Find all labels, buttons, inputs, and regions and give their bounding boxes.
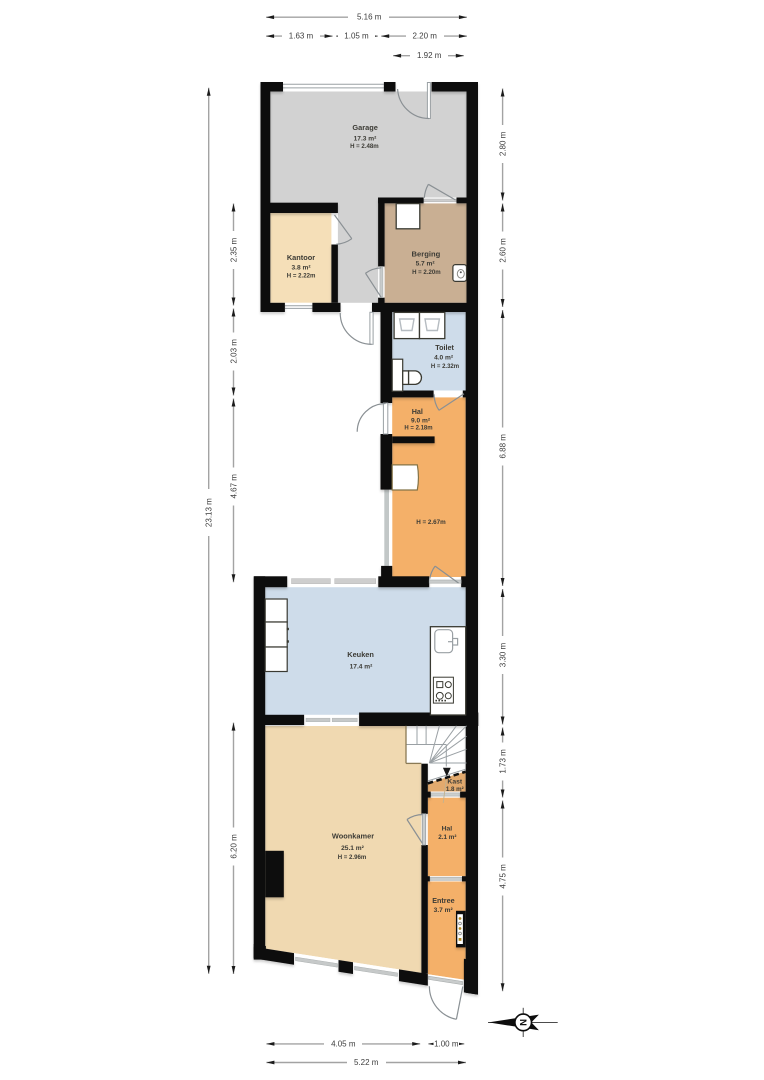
svg-text:Entree: Entree bbox=[432, 896, 454, 905]
svg-text:Berging: Berging bbox=[412, 249, 441, 258]
svg-text:Kast: Kast bbox=[447, 778, 462, 785]
svg-text:2.20 m: 2.20 m bbox=[412, 32, 437, 41]
svg-text:3.30 m: 3.30 m bbox=[499, 642, 508, 667]
svg-text:6.20 m: 6.20 m bbox=[230, 834, 239, 859]
svg-text:9.0 m²: 9.0 m² bbox=[411, 417, 431, 424]
svg-text:1.00 m: 1.00 m bbox=[434, 1039, 459, 1048]
svg-text:H = 2.48m: H = 2.48m bbox=[350, 143, 379, 150]
svg-text:Keuken: Keuken bbox=[347, 650, 374, 659]
svg-text:H = 2.67m: H = 2.67m bbox=[416, 519, 446, 526]
svg-text:5.22 m: 5.22 m bbox=[354, 1058, 379, 1067]
svg-text:5.7 m²: 5.7 m² bbox=[416, 260, 436, 267]
svg-text:H = 2.96m: H = 2.96m bbox=[338, 854, 367, 861]
svg-text:H = 2.22m: H = 2.22m bbox=[287, 272, 316, 279]
svg-text:5.16 m: 5.16 m bbox=[357, 13, 382, 22]
svg-text:4.0 m²: 4.0 m² bbox=[434, 355, 454, 362]
svg-text:2.80 m: 2.80 m bbox=[499, 131, 508, 156]
svg-text:17.4 m²: 17.4 m² bbox=[350, 664, 374, 671]
svg-text:2.35 m: 2.35 m bbox=[230, 237, 239, 262]
svg-text:Hal: Hal bbox=[442, 826, 453, 833]
svg-text:Kantoor: Kantoor bbox=[287, 253, 315, 262]
svg-text:Woonkamer: Woonkamer bbox=[332, 832, 374, 841]
svg-text:2.03 m: 2.03 m bbox=[230, 339, 239, 364]
svg-text:2.1 m²: 2.1 m² bbox=[438, 834, 456, 841]
svg-text:4.67 m: 4.67 m bbox=[230, 474, 239, 499]
svg-text:4.05 m: 4.05 m bbox=[331, 1039, 356, 1048]
svg-text:4.75 m: 4.75 m bbox=[499, 864, 508, 889]
svg-text:H = 2.32m: H = 2.32m bbox=[431, 364, 459, 370]
svg-text:N: N bbox=[518, 1019, 529, 1026]
svg-text:H = 2.20m: H = 2.20m bbox=[412, 269, 441, 276]
svg-text:Hal: Hal bbox=[412, 407, 423, 416]
svg-text:25.1 m²: 25.1 m² bbox=[341, 845, 365, 852]
svg-text:1.8 m²: 1.8 m² bbox=[446, 786, 464, 793]
svg-text:17.3 m²: 17.3 m² bbox=[354, 135, 378, 142]
svg-text:Garage: Garage bbox=[352, 123, 377, 132]
svg-text:23.13 m: 23.13 m bbox=[205, 498, 214, 527]
svg-text:1.63 m: 1.63 m bbox=[289, 32, 314, 41]
svg-text:1.92 m: 1.92 m bbox=[417, 51, 442, 60]
svg-text:2.60 m: 2.60 m bbox=[499, 238, 508, 263]
svg-text:Toilet: Toilet bbox=[435, 343, 454, 352]
svg-text:1.73 m: 1.73 m bbox=[499, 749, 508, 774]
svg-text:3.7 m²: 3.7 m² bbox=[434, 907, 454, 914]
svg-text:3.8 m²: 3.8 m² bbox=[291, 265, 311, 272]
svg-text:H = 2.18m: H = 2.18m bbox=[404, 425, 432, 431]
svg-text:1.05 m: 1.05 m bbox=[344, 32, 369, 41]
svg-text:6.88 m: 6.88 m bbox=[499, 434, 508, 459]
